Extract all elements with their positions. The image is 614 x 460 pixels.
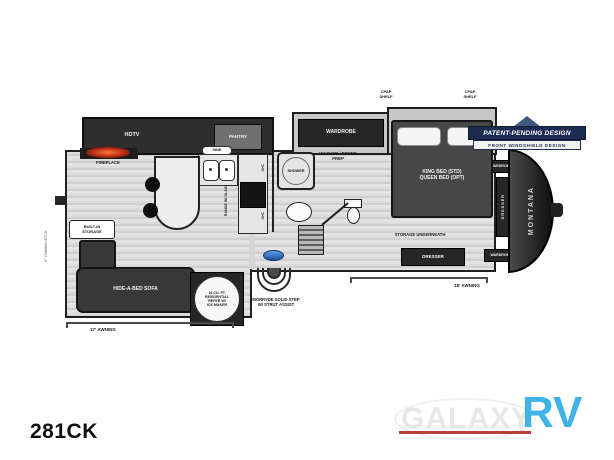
wardrobe-cabinet: WARDROBE bbox=[298, 119, 384, 147]
cpap-left-line2: SHELF bbox=[368, 95, 404, 100]
badge-subtitle: FRONT WINDSHIELD DESIGN bbox=[488, 143, 566, 148]
toilet-bowl bbox=[347, 207, 360, 224]
hdtv-label: HDTV bbox=[102, 132, 162, 138]
cpap-shelf-right: CPAP SHELF bbox=[452, 90, 488, 99]
refrigerator-label: 18 CU. FT. RESIDENTIAL REFER W/ ICE MAKE… bbox=[205, 291, 229, 308]
washer-dryer-line2: PREP bbox=[306, 157, 370, 162]
awning-left-tick-start bbox=[66, 322, 68, 328]
cpap-shelf-left: CPAP SHELF bbox=[368, 90, 404, 99]
bath-sink bbox=[286, 202, 312, 222]
refer-line4: ICE MAKER bbox=[205, 303, 229, 307]
fireplace-flame-icon bbox=[86, 147, 130, 158]
sink-tag: SINK bbox=[202, 146, 232, 155]
hide-a-bed-sofa: HIDE-A-BED SOFA bbox=[76, 267, 195, 313]
bedroom-steps bbox=[298, 225, 324, 255]
front-dresser-label: DRESSER bbox=[501, 194, 505, 219]
floorplan-page: WARDROBE DRESSER WARDROBE MONTANA 2" TOW… bbox=[0, 0, 614, 460]
solid-step-logo-icon bbox=[263, 250, 284, 261]
shower-label: SHOWER bbox=[287, 169, 304, 173]
pantry-label: PANTRY bbox=[229, 134, 247, 139]
wardrobe-label: WARDROBE bbox=[326, 130, 356, 136]
pillow-left bbox=[397, 127, 441, 146]
cpap-right-line2: SHELF bbox=[452, 95, 488, 100]
sofa-label: HIDE-A-BED SOFA bbox=[113, 287, 157, 293]
awning-left-tick-end bbox=[232, 322, 234, 328]
built-in-line2: STORAGE bbox=[82, 230, 102, 235]
overhead-cabinet-lower-label: OHC bbox=[261, 212, 265, 220]
awning-line-left bbox=[66, 322, 234, 324]
awning-right-label: 18' AWNING bbox=[442, 283, 492, 288]
rear-hitch-label: 2" TOWING HITCH bbox=[44, 200, 48, 262]
bed-label: KING BED (STD) QUEEN BED (OPT) bbox=[393, 170, 491, 182]
awning-left-label: 17' AWNING bbox=[76, 327, 130, 332]
rear-hitch-receiver bbox=[55, 196, 66, 205]
sink-label: SINK bbox=[212, 148, 221, 152]
patent-pending-badge: PATENT-PENDING DESIGN FRONT WINDSHIELD D… bbox=[468, 116, 586, 150]
montana-brand-label: MONTANA bbox=[528, 186, 535, 235]
sink-basin-left bbox=[203, 160, 219, 181]
fireplace-label: FIREPLACE bbox=[76, 161, 140, 166]
bar-stool-2 bbox=[143, 203, 158, 218]
built-in-storage: BUILT-IN STORAGE bbox=[69, 220, 115, 239]
kitchen-island bbox=[154, 156, 200, 230]
morryde-step-label: MORRYDE SOLID STEP W/ STRUT ASSIST bbox=[234, 298, 318, 308]
badge-banner: PATENT-PENDING DESIGN bbox=[468, 126, 586, 140]
range-stove bbox=[240, 182, 266, 208]
sink-drain-left bbox=[209, 168, 212, 171]
badge-title: PATENT-PENDING DESIGN bbox=[483, 130, 570, 137]
logo-underline bbox=[399, 431, 531, 434]
bathroom-wall bbox=[272, 152, 274, 232]
bar-stool-1 bbox=[145, 177, 160, 192]
awning-line-right bbox=[350, 277, 488, 279]
built-in-storage-label: BUILT-IN STORAGE bbox=[82, 225, 102, 234]
washer-dryer-prep-label: WASHER / DRYER PREP bbox=[306, 152, 370, 162]
badge-strip: FRONT WINDSHIELD DESIGN bbox=[473, 140, 581, 150]
sink-basin-right bbox=[219, 160, 235, 181]
bed-label-line2: QUEEN BED (OPT) bbox=[393, 176, 491, 182]
sink-drain-right bbox=[225, 168, 228, 171]
overhead-cabinet-upper-label: OHC bbox=[261, 164, 265, 172]
morryde-line2: W/ STRUT ASSIST bbox=[234, 303, 318, 308]
awning-right-tick-start bbox=[350, 277, 352, 283]
kingpin-hitch bbox=[551, 203, 563, 217]
rv-logo-text: RV bbox=[522, 388, 582, 438]
storage-underneath-label: STORAGE UNDERNEATH bbox=[372, 233, 468, 238]
dresser-label: DRESSER bbox=[422, 254, 444, 259]
dresser: DRESSER bbox=[401, 248, 465, 266]
sink-counter bbox=[198, 154, 238, 186]
model-number: 281CK bbox=[30, 420, 98, 444]
front-cap: MONTANA bbox=[508, 149, 554, 273]
